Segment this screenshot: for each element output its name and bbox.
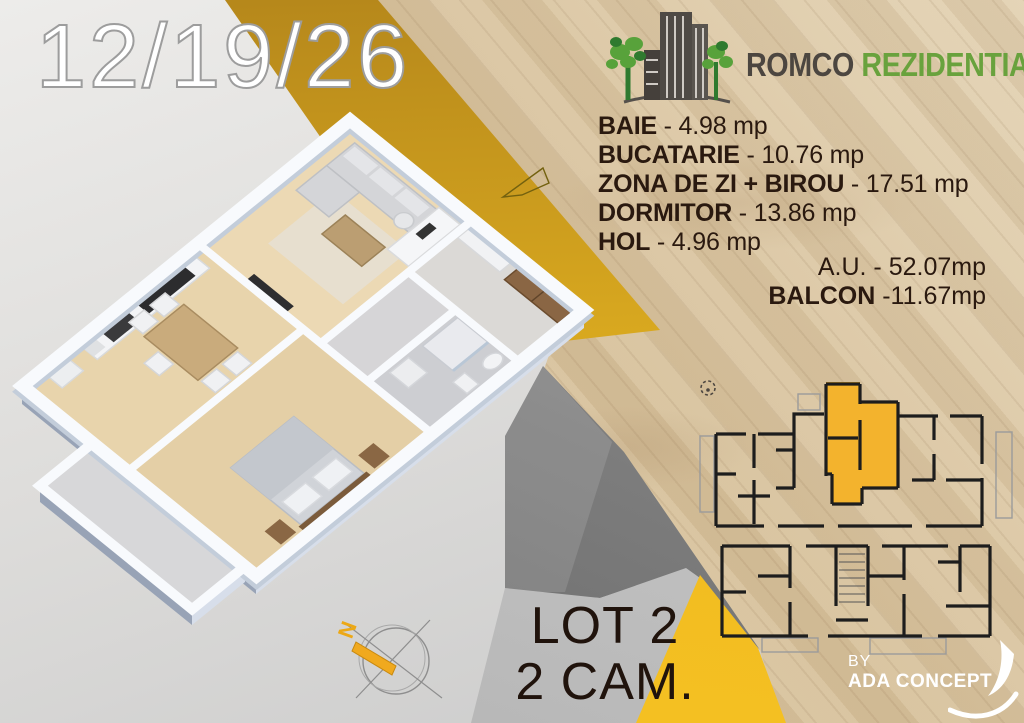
sail-logo-icon	[948, 638, 1020, 723]
svg-text:N: N	[333, 618, 362, 641]
room-areas-list: BAIE - 4.98 mp BUCATARIE - 10.76 mp ZONA…	[598, 112, 968, 257]
lot-line1: LOT 2	[492, 598, 718, 654]
brand-logo-building-icon	[604, 6, 749, 108]
highlighted-unit	[826, 382, 898, 504]
room-row: BUCATARIE - 10.76 mp	[598, 141, 968, 170]
brand-name-primary: ROMCO	[746, 46, 854, 83]
room-row: BAIE - 4.98 mp	[598, 112, 968, 141]
totals: A.U. - 52.07mp BALCON -11.67mp	[620, 253, 986, 311]
lot-line2: 2 CAM.	[492, 654, 718, 710]
lot-title: LOT 2 2 CAM.	[492, 598, 718, 710]
brand-name-secondary: REZIDENTIAL	[861, 46, 1024, 83]
brand-name: ROMCO REZIDENTIAL	[746, 46, 1024, 84]
au-row: A.U. - 52.07mp	[620, 253, 986, 282]
flyer-canvas: N 12/19/26 ROMCO	[0, 0, 1024, 723]
date-label: 12/19/26	[36, 6, 410, 109]
stairwell-hatch	[839, 554, 865, 602]
building-plan-schematic	[698, 376, 1018, 676]
room-row: DORMITOR - 13.86 mp	[598, 199, 968, 228]
north-compass-icon: N	[330, 606, 460, 721]
room-row: ZONA DE ZI + BIROU - 17.51 mp	[598, 170, 968, 199]
balcon-row: BALCON -11.67mp	[620, 282, 986, 311]
arrow-doodle-icon	[495, 163, 557, 211]
plan-compass-icon	[701, 381, 715, 395]
